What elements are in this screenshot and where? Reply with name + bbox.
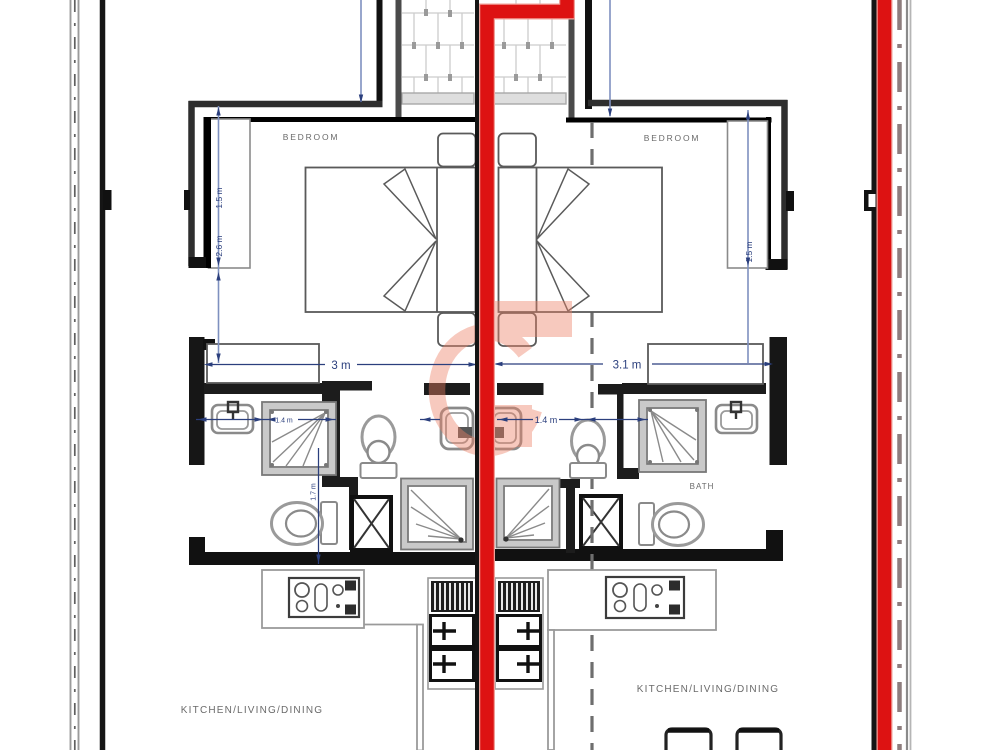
svg-text:BEDROOM: BEDROOM — [283, 132, 340, 142]
svg-text:3 m: 3 m — [331, 360, 350, 372]
svg-text:BATH: BATH — [690, 482, 715, 491]
svg-text:KITCHEN/LIVING/DINING: KITCHEN/LIVING/DINING — [181, 705, 323, 716]
svg-text:KITCHEN/LIVING/DINING: KITCHEN/LIVING/DINING — [637, 684, 779, 695]
svg-text:1.5 m: 1.5 m — [744, 241, 754, 262]
svg-text:1.5 m: 1.5 m — [214, 187, 224, 208]
svg-text:2.6 m: 2.6 m — [214, 235, 224, 256]
svg-text:3.1 m: 3.1 m — [613, 360, 642, 372]
svg-text:1.4 m: 1.4 m — [535, 415, 558, 425]
svg-text:BEDROOM: BEDROOM — [644, 133, 701, 143]
svg-text:1.4 m: 1.4 m — [275, 418, 293, 425]
svg-text:1.7 m: 1.7 m — [311, 483, 318, 501]
